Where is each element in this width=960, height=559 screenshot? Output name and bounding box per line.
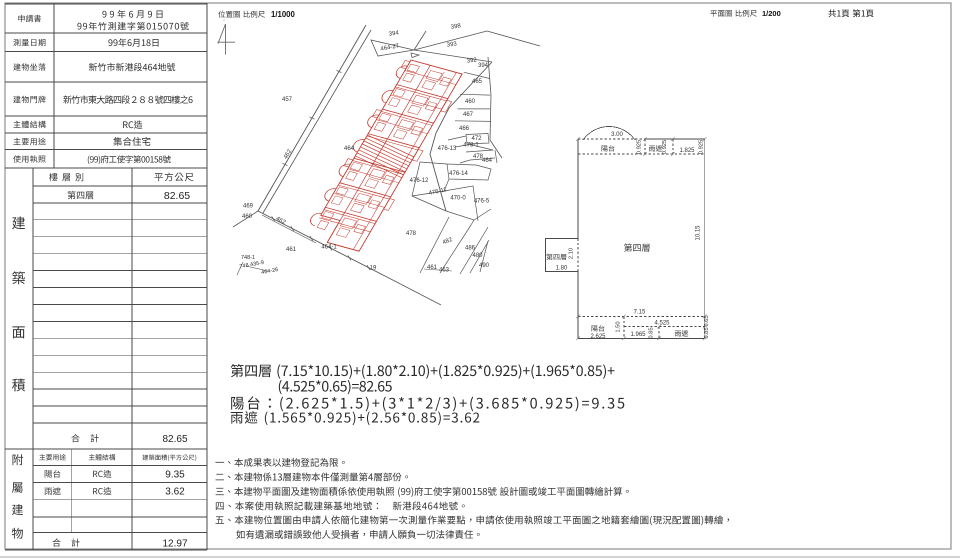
svg-text:466: 466 (459, 126, 470, 132)
svg-text:0.85: 0.85 (704, 327, 710, 338)
svg-text:490: 490 (479, 263, 490, 269)
svg-text:1/1000: 1/1000 (271, 10, 296, 19)
svg-text:2.625: 2.625 (590, 334, 606, 340)
svg-text:472: 472 (471, 136, 482, 142)
svg-text:470-0: 470-0 (450, 196, 466, 202)
svg-text:19: 19 (370, 266, 377, 272)
svg-text:10.15: 10.15 (696, 225, 702, 241)
svg-text:82.65: 82.65 (162, 434, 187, 445)
svg-text:464-1: 464-1 (321, 245, 337, 251)
svg-text:1.825: 1.825 (679, 148, 695, 154)
svg-text:476-12: 476-12 (410, 178, 429, 184)
svg-text:↑: ↑ (223, 18, 226, 24)
svg-text:12.97: 12.97 (162, 538, 187, 549)
svg-text:1.50: 1.50 (616, 321, 622, 332)
svg-text:476-14: 476-14 (449, 171, 468, 177)
svg-text:4.525: 4.525 (654, 321, 670, 327)
svg-text:394: 394 (478, 63, 489, 69)
svg-text:480: 480 (472, 253, 483, 259)
svg-text:486: 486 (465, 246, 476, 252)
svg-text:465: 465 (472, 79, 483, 85)
svg-text:461: 461 (286, 247, 297, 253)
svg-text:1.965: 1.965 (630, 332, 646, 338)
svg-text:748-1: 748-1 (241, 255, 255, 261)
svg-text:1/200: 1/200 (762, 9, 781, 18)
svg-text:461: 461 (427, 265, 438, 271)
svg-text:0.925: 0.925 (662, 140, 668, 155)
svg-text:464: 464 (344, 146, 355, 152)
svg-text:476-13: 476-13 (438, 146, 457, 152)
svg-text:7.15: 7.15 (634, 310, 646, 316)
svg-text:478: 478 (406, 231, 417, 237)
svg-text:3.00: 3.00 (611, 132, 623, 138)
svg-text:460: 460 (465, 99, 476, 105)
svg-text:0.925: 0.925 (637, 140, 643, 155)
svg-text:476-5: 476-5 (474, 199, 490, 205)
svg-text:457: 457 (282, 97, 293, 103)
svg-text:463: 463 (439, 268, 450, 274)
svg-text:2.10: 2.10 (569, 248, 575, 259)
svg-text:478-1: 478-1 (463, 143, 479, 149)
svg-text:469: 469 (243, 204, 254, 210)
svg-text:464: 464 (482, 158, 493, 164)
svg-text:460: 460 (242, 214, 253, 220)
svg-text:3.62: 3.62 (165, 487, 185, 498)
svg-text:0.925: 0.925 (699, 140, 705, 155)
svg-text:82.65: 82.65 (164, 190, 190, 202)
svg-text:467: 467 (463, 112, 474, 118)
svg-text:9.35: 9.35 (165, 469, 185, 480)
svg-text:0.65: 0.65 (704, 315, 710, 326)
svg-text:0.85: 0.85 (649, 327, 655, 338)
svg-text:1.80: 1.80 (556, 266, 568, 272)
